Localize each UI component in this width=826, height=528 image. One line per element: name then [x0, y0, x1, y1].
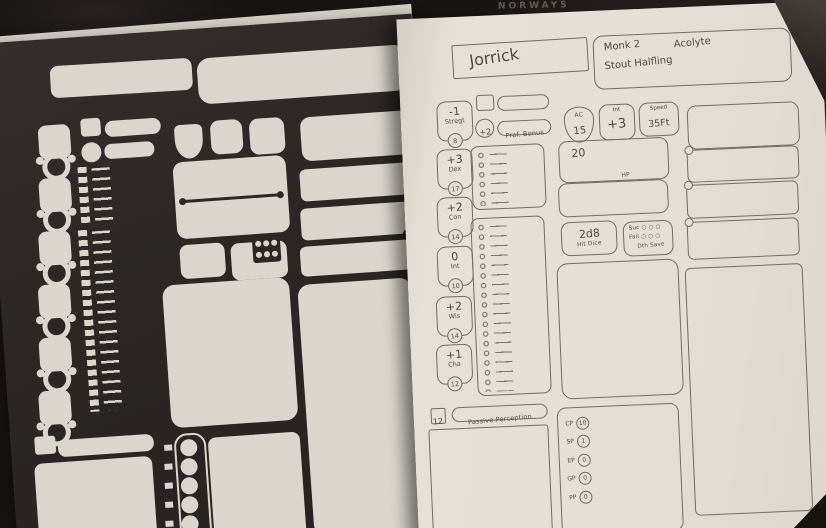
stencil-deathsave-pips	[252, 234, 282, 263]
currency-label: CP	[562, 420, 574, 428]
inspiration-label-box	[497, 94, 550, 111]
stencil-inspiration-label-slot	[104, 117, 161, 137]
currency-value: 0	[577, 453, 591, 467]
ring-knob	[68, 154, 77, 163]
stencil-classinfo-slot	[196, 44, 409, 105]
currency-value: 0	[578, 471, 592, 485]
currency-value: 1	[576, 434, 590, 448]
death-save-fail-label: Fail	[629, 233, 640, 243]
ring-knob	[68, 314, 77, 323]
ability-intelligence: 0Int 10	[436, 245, 474, 297]
currency-value: 10	[576, 416, 590, 430]
stencil-notes-slot	[34, 456, 158, 528]
stencil-hitdice-slot	[179, 242, 226, 279]
die-pip	[271, 251, 277, 257]
ac-shield: AC 15	[563, 106, 595, 143]
prof-bonus-label: Prof. Bonus	[505, 126, 545, 143]
attack-row-circle	[684, 181, 693, 190]
stencil-skills-comb	[78, 228, 123, 412]
stencil-deathsave-slot	[230, 240, 288, 281]
stencil-equipment-slot	[208, 431, 307, 528]
stencil-profbonus-circle-slot	[81, 142, 102, 163]
character-sheet-stencil	[0, 14, 447, 528]
inspiration-box	[476, 94, 495, 111]
speed-value: 35Ft	[648, 117, 670, 131]
death-save-success-circles: ○ ○ ○	[641, 224, 660, 231]
attacks-header-box	[686, 101, 800, 150]
attack-row-box	[687, 217, 801, 260]
ac-label: AC	[564, 110, 593, 120]
initiative-label: Int	[599, 105, 633, 114]
stencil-inspiration-slot	[80, 118, 101, 137]
stencil-hp-slot	[172, 155, 290, 240]
stencil-initiative-slot	[210, 119, 244, 155]
stencil-name-slot	[49, 58, 193, 99]
hand-drawn-character-sheet: Jorrick Monk 2 Acolyte Stout Halfling +2…	[396, 1, 826, 528]
stencil-profbonus-label-slot	[104, 141, 155, 159]
die-pip	[263, 240, 269, 246]
hit-dice-box: 2d8 Hit Dice	[560, 220, 617, 256]
stencil-attacks-header-slot	[300, 110, 414, 162]
hp-value: 20	[571, 146, 586, 160]
temp-hp-box	[558, 179, 669, 218]
notes-box	[428, 424, 553, 528]
stencil-attack-row-slot	[299, 162, 412, 202]
stencil-attack-row-slot	[300, 239, 413, 277]
character-background: Acolyte	[674, 36, 712, 51]
initiative-value: +3	[607, 116, 628, 134]
ability-score: 12	[447, 376, 463, 392]
die-pip	[255, 241, 261, 247]
stencil-hp-divider	[182, 193, 281, 202]
attack-row-circle	[684, 146, 693, 155]
die-pip	[264, 251, 270, 257]
class-and-level: Monk 2	[603, 39, 640, 53]
currency-label: SP	[563, 438, 575, 446]
death-saves-box: Suc ○ ○ ○ Fail ○ ○ ○ Dth Save	[622, 220, 673, 257]
equipment-box: CP10 SP1 EP0 GP0 PP0	[557, 403, 684, 528]
ac-value: 15	[573, 126, 587, 136]
strip-tooth-cutout	[164, 463, 172, 470]
saving-throws-box	[470, 143, 547, 210]
stencil-ac-shield-slot	[174, 124, 204, 160]
stencil-saving-throw-comb	[77, 165, 113, 225]
ability-dexterity: +3Dex 17	[436, 148, 474, 200]
passive-perception-value-box: 12	[430, 408, 446, 425]
attack-row-circle	[684, 218, 693, 227]
surface-print-text: NORWAYS	[498, 0, 570, 11]
prof-bonus-circle: +2	[475, 118, 495, 138]
ring-knob	[68, 420, 77, 429]
features-box	[556, 258, 684, 399]
speed-label: Speed	[639, 103, 677, 113]
passive-perception-label-box: Passive Perception	[451, 403, 548, 422]
character-race: Stout Halfling	[604, 55, 673, 72]
death-save-fail-circles: ○ ○ ○	[641, 233, 660, 240]
ability-score: 17	[447, 180, 463, 196]
passive-perception-value: 12	[433, 415, 444, 430]
ability-strength: -1Stregt 8	[436, 100, 474, 152]
currency-label: EP	[564, 457, 576, 465]
strip-tooth-cutout	[164, 444, 172, 451]
name-box: Jorrick	[451, 37, 589, 79]
attack-row-box	[686, 180, 799, 219]
stencil-pp-slot	[34, 436, 56, 455]
ability-constitution: +2Con 14	[436, 196, 474, 248]
hp-box: 20 HP	[558, 137, 670, 184]
ability-charisma: +1Cha 12	[436, 344, 474, 396]
stencil-features-slot	[162, 277, 299, 429]
ring-knob	[68, 261, 77, 270]
character-name: Jorrick	[468, 44, 520, 70]
currency-label: PP	[565, 494, 577, 502]
prof-bonus-label-box: Prof. Bonus	[497, 119, 552, 136]
ability-score: 14	[447, 328, 463, 344]
currency-value: 0	[579, 490, 593, 504]
ability-wisdom: +2Wis 14	[436, 295, 474, 347]
photo-scene: NORWAYS	[0, 0, 826, 528]
skills-box	[470, 215, 552, 396]
ring-knob	[68, 367, 77, 376]
prof-bonus-value: +2	[478, 123, 491, 141]
hp-label: HP	[622, 171, 631, 179]
ability-score: 14	[447, 228, 463, 244]
ability-score: 8	[447, 132, 463, 148]
hit-dice-label: Hit Dice	[562, 239, 616, 250]
strip-tooth-cutout	[165, 501, 173, 508]
death-save-label: Dth Save	[637, 240, 665, 251]
bottom-right-box	[685, 263, 814, 516]
ability-score: 10	[447, 277, 463, 293]
die-pip	[256, 252, 262, 258]
hit-dice-value: 2d8	[578, 226, 600, 241]
strip-tooth-cutout	[165, 520, 173, 527]
stencil-attack-row-slot	[300, 201, 413, 241]
stencil-speed-slot	[248, 117, 285, 155]
class-info-box: Monk 2 Acolyte Stout Halfling	[592, 27, 792, 90]
initiative-box: Int +3	[598, 103, 636, 141]
strip-tooth-cutout	[165, 482, 173, 489]
ring-knob	[68, 207, 77, 216]
die-pip	[271, 240, 277, 246]
currency-row: PP0	[565, 484, 682, 508]
speed-box: Speed 35Ft	[638, 101, 679, 137]
currency-label: GP	[564, 475, 576, 483]
attack-row-box	[686, 145, 799, 183]
